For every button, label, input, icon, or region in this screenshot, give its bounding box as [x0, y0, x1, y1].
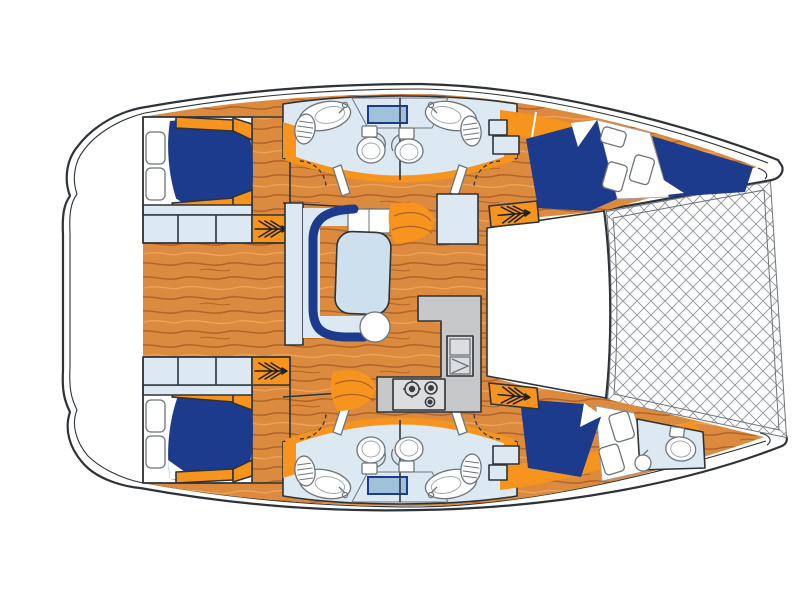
- side-shelf: [143, 205, 252, 215]
- hull-step: [493, 136, 519, 154]
- chart-table: [437, 194, 478, 244]
- pillow: [146, 132, 165, 164]
- cistern: [399, 128, 414, 139]
- hull-step: [489, 465, 507, 480]
- shelf: [176, 117, 233, 131]
- hull-step: [493, 446, 519, 464]
- pillow: [146, 436, 165, 468]
- stove: [393, 379, 445, 410]
- window: [368, 477, 407, 494]
- pillow: [146, 400, 165, 432]
- sink: [635, 455, 651, 471]
- cabinet-row: [143, 215, 252, 243]
- side-shelf: [143, 385, 252, 395]
- settee-backrest-panel: [285, 203, 303, 345]
- saloon-table: [335, 231, 392, 315]
- corner-trim: [283, 122, 296, 158]
- hull-step: [489, 120, 507, 135]
- cistern: [399, 461, 414, 472]
- window: [368, 106, 407, 123]
- pouf-seat: [360, 312, 390, 342]
- pillow: [146, 168, 165, 200]
- cistern: [362, 126, 377, 137]
- catamaran-floor-plan: [0, 0, 800, 600]
- corner-trim: [283, 442, 296, 478]
- trampoline: [607, 182, 786, 437]
- shelf: [176, 469, 233, 483]
- cistern: [362, 463, 377, 474]
- floor-plan-svg: [0, 0, 800, 600]
- cabinet-row: [143, 357, 252, 385]
